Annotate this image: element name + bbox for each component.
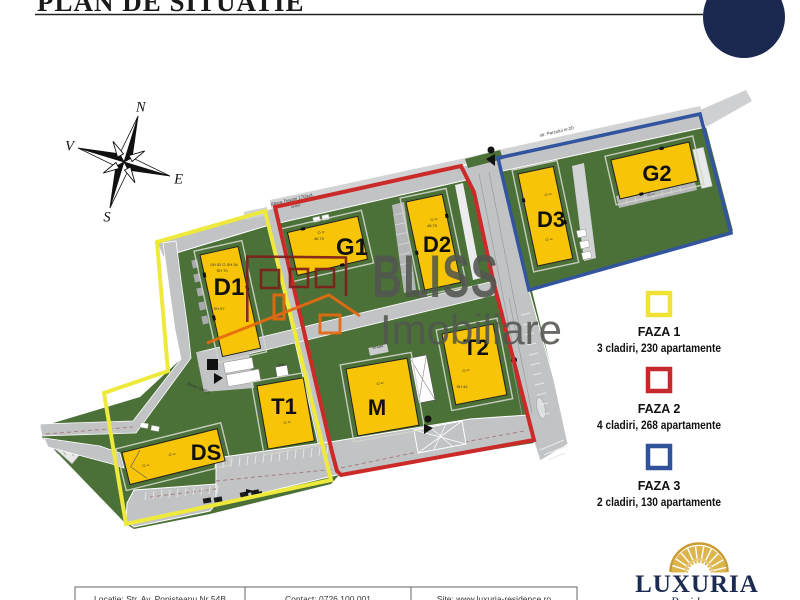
svg-text:Site: www.luxuria-residence.ro: Site: www.luxuria-residence.ro xyxy=(437,594,552,600)
svg-text:N: N xyxy=(135,99,147,115)
svg-text:FAZA 2: FAZA 2 xyxy=(638,402,681,416)
svg-text:T1: T1 xyxy=(271,394,297,419)
svg-text:O ¹⁴: O ¹⁴ xyxy=(545,237,553,242)
svg-text:3 cladiri, 230 apartamente: 3 cladiri, 230 apartamente xyxy=(597,341,721,355)
svg-text:Residence: Residence xyxy=(670,594,724,600)
svg-text:O ¹²: O ¹² xyxy=(169,452,177,457)
svg-text:DS: DS xyxy=(191,440,222,465)
svg-text:SH 52 O SH 54: SH 52 O SH 54 xyxy=(210,262,238,267)
svg-text:FAZA 3: FAZA 3 xyxy=(638,479,681,493)
svg-text:O ¹²: O ¹² xyxy=(463,368,471,373)
svg-text:4 cladiri, 268 apartamente: 4 cladiri, 268 apartamente xyxy=(597,418,721,432)
svg-text:O ¹⁴: O ¹⁴ xyxy=(142,463,150,468)
svg-text:SH 70: SH 70 xyxy=(216,268,228,273)
svg-text:Locatie: Str. Av. Popisteanu N: Locatie: Str. Av. Popisteanu Nr 54B xyxy=(94,594,226,600)
svg-text:D3: D3 xyxy=(537,207,565,232)
svg-text:O ¹²: O ¹² xyxy=(648,192,656,197)
svg-text:M: M xyxy=(368,395,386,420)
svg-text:O ¹²: O ¹² xyxy=(318,230,326,235)
svg-text:G2: G2 xyxy=(642,161,671,186)
svg-text:FAZA 1: FAZA 1 xyxy=(638,325,681,339)
svg-text:SH 57: SH 57 xyxy=(213,306,225,311)
svg-text:S: S xyxy=(103,209,111,225)
svg-text:E: E xyxy=(173,172,183,188)
svg-text:O ¹²: O ¹² xyxy=(545,192,553,197)
svg-text:46 70: 46 70 xyxy=(314,236,325,241)
svg-text:2 cladiri, 130 apartamente: 2 cladiri, 130 apartamente xyxy=(597,495,721,509)
svg-text:46 70: 46 70 xyxy=(427,223,438,228)
svg-text:Contact: 0726 100 001: Contact: 0726 100 001 xyxy=(285,594,371,600)
svg-text:O ¹²: O ¹² xyxy=(377,381,385,386)
svg-text:D1: D1 xyxy=(214,274,245,301)
svg-text:O ¹²: O ¹² xyxy=(284,420,292,425)
svg-text:SH 44: SH 44 xyxy=(456,384,468,389)
svg-text:O ¹²: O ¹² xyxy=(431,217,439,222)
svg-text:BLISS: BLISS xyxy=(372,243,499,310)
svg-text:Imobiliare: Imobiliare xyxy=(380,306,562,353)
